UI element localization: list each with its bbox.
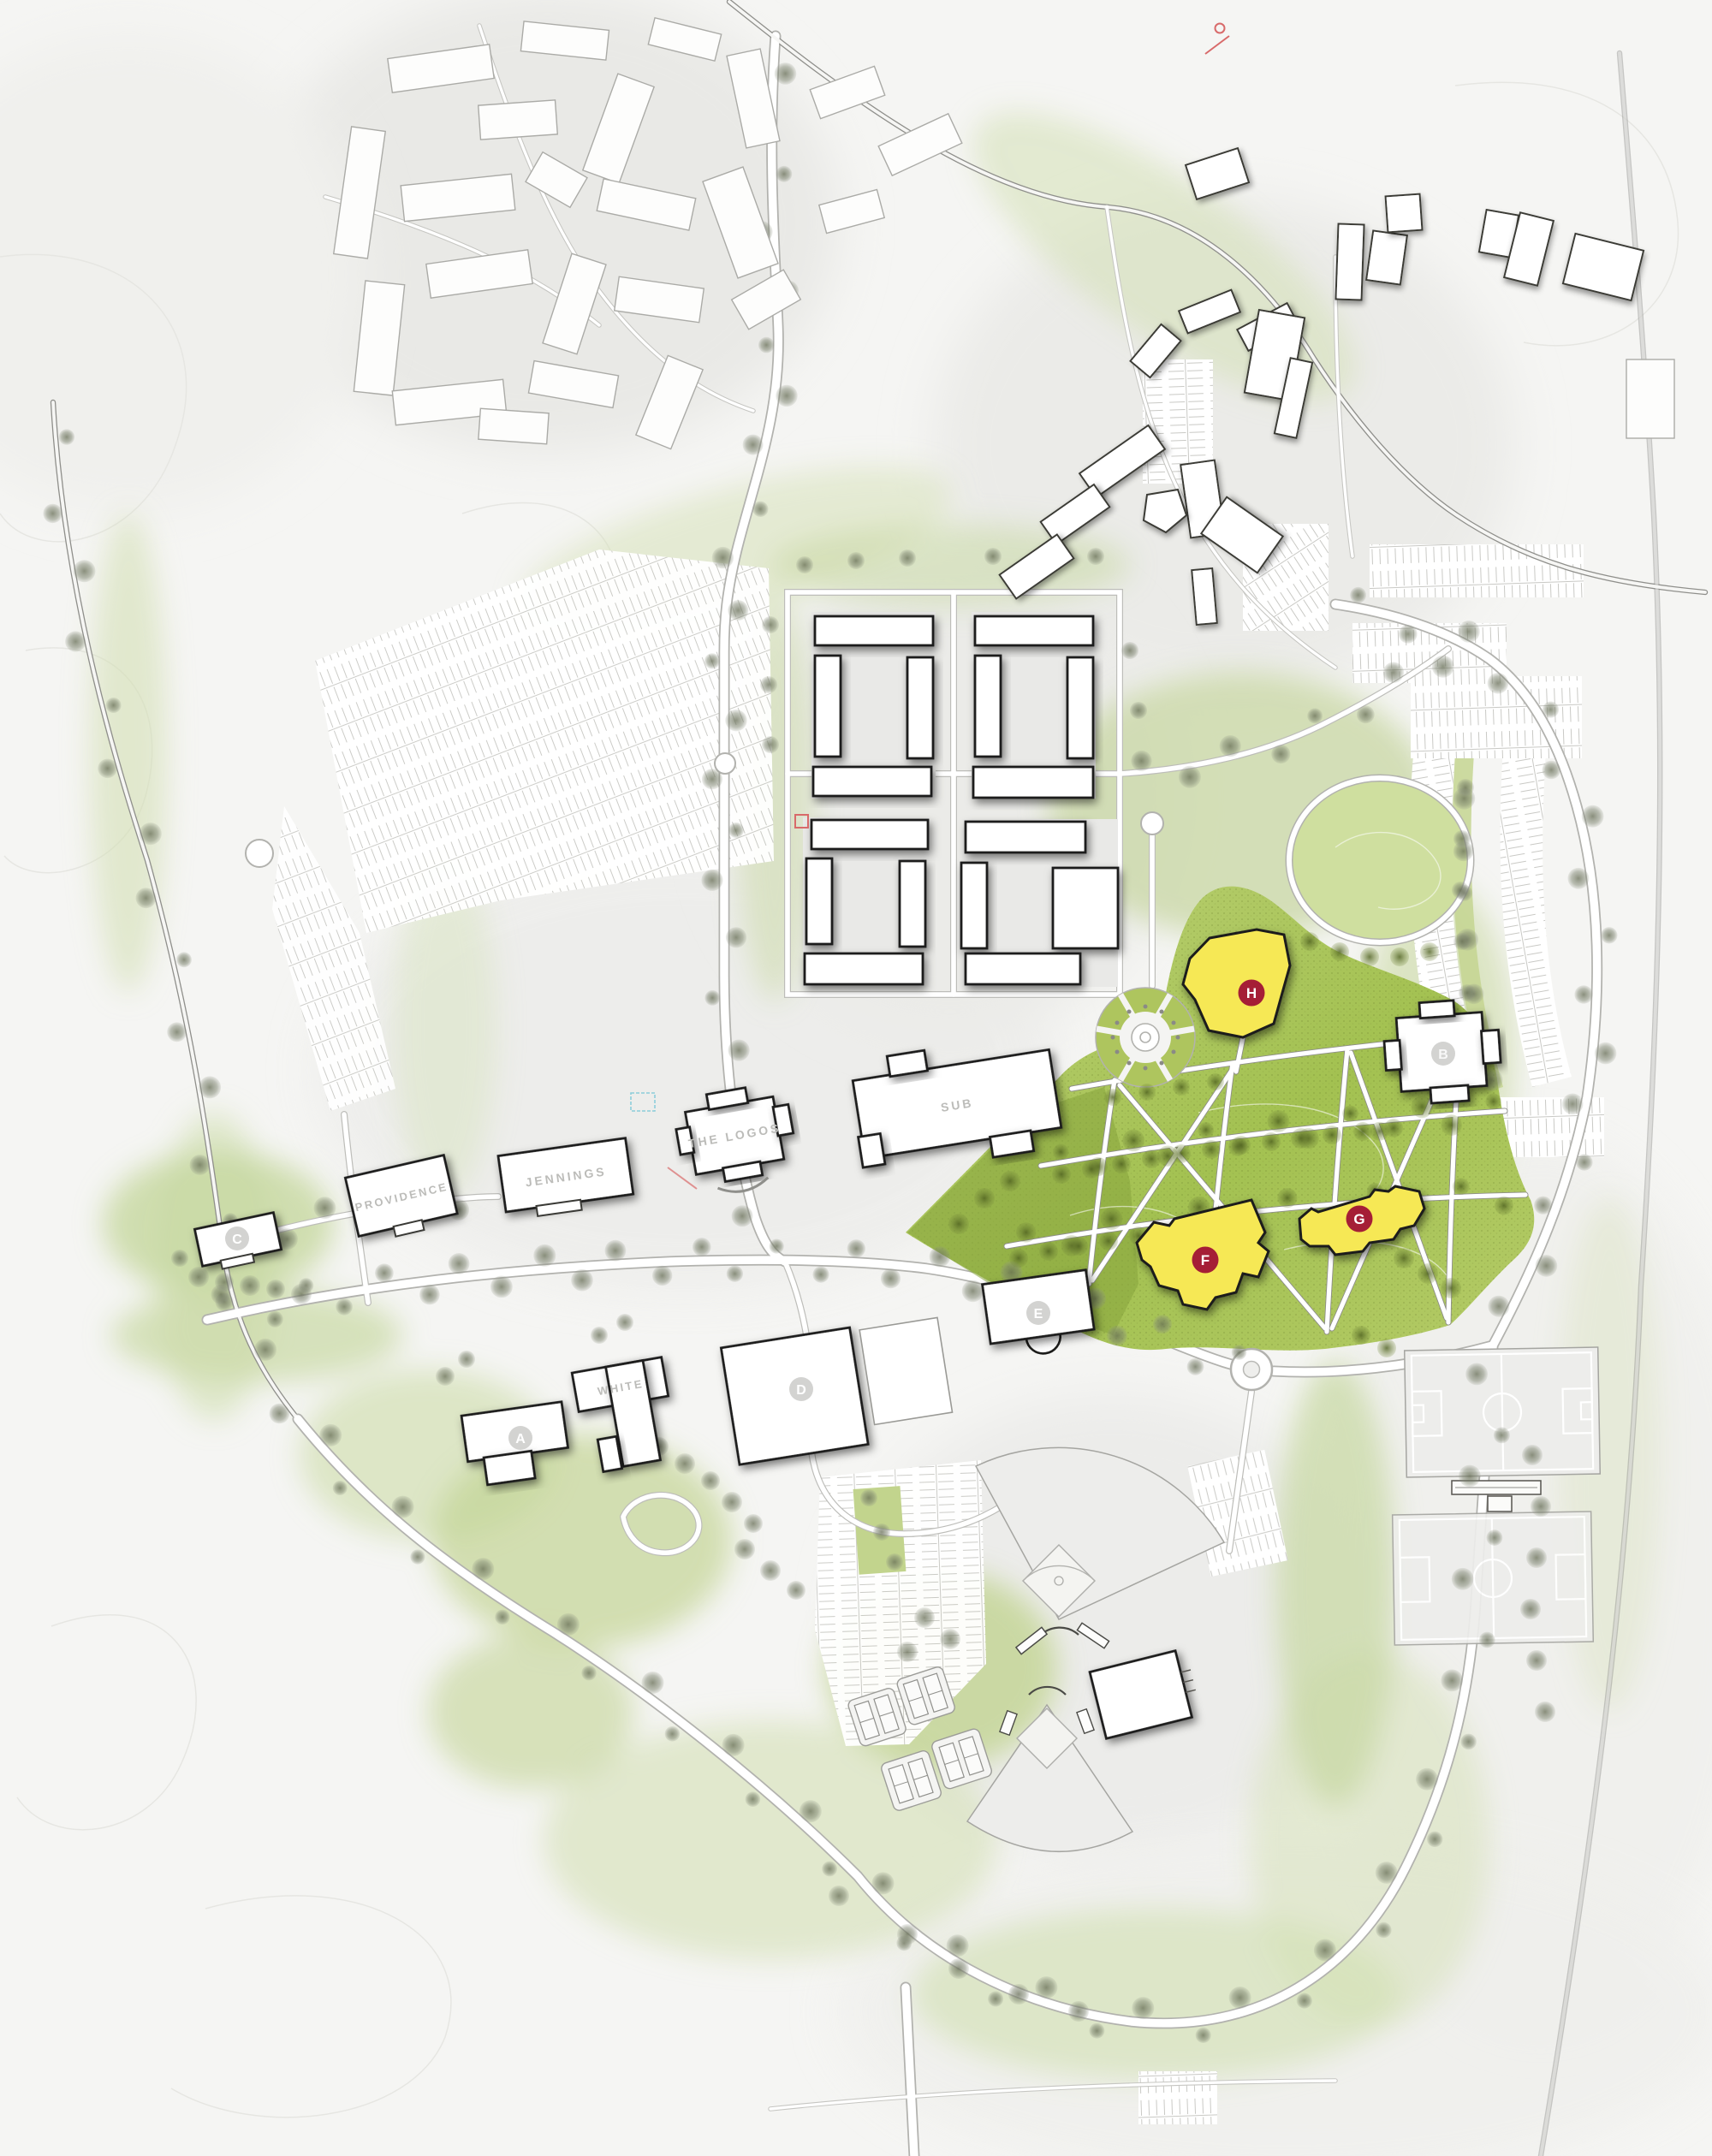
tree-icon	[1543, 702, 1559, 718]
tree-icon	[190, 1155, 211, 1175]
tree-icon	[758, 337, 775, 353]
tree-icon	[762, 616, 779, 633]
tree-icon	[1416, 1768, 1438, 1791]
tree-icon	[1441, 1670, 1463, 1692]
tree-icon	[1441, 1278, 1461, 1298]
tree-icon	[1394, 1248, 1414, 1268]
building-d-annex	[859, 1317, 952, 1424]
tree-icon	[1121, 642, 1138, 659]
tree-icon	[136, 888, 157, 908]
tree-icon	[1574, 985, 1592, 1003]
tree-icon	[702, 769, 722, 789]
tree-icon	[1039, 1242, 1058, 1261]
tree-icon	[1534, 1197, 1552, 1215]
tree-icon	[675, 1453, 695, 1474]
tree-icon	[1488, 1296, 1509, 1317]
roundabout-west	[246, 840, 273, 867]
tree-icon	[1432, 656, 1454, 678]
tree-icon	[1582, 805, 1604, 828]
tree-icon	[1314, 1939, 1336, 1962]
tree-icon	[746, 1791, 761, 1807]
tree-icon	[1376, 1862, 1398, 1884]
svg-text:C: C	[232, 1232, 242, 1247]
tree-icon	[188, 1267, 209, 1287]
tree-icon	[829, 1886, 849, 1906]
svg-text:E: E	[1034, 1307, 1043, 1322]
tree-icon	[701, 1471, 720, 1490]
tree-icon	[1568, 868, 1590, 889]
tree-icon	[1202, 1140, 1221, 1159]
tree-icon	[59, 429, 74, 444]
tree-icon	[701, 870, 722, 891]
tree-icon	[948, 1958, 969, 1979]
tree-icon	[1232, 1345, 1247, 1360]
tree-icon	[1016, 1222, 1036, 1242]
tree-icon	[1353, 1122, 1372, 1141]
tree-icon	[800, 1800, 822, 1822]
tree-icon	[1595, 1042, 1617, 1065]
tree-icon	[591, 1327, 608, 1344]
tree-icon	[744, 1514, 763, 1533]
tree-icon	[270, 1404, 290, 1424]
tree-icon	[1112, 1155, 1131, 1173]
tree-icon	[254, 1339, 276, 1361]
tree-icon	[1360, 947, 1379, 966]
svg-text:B: B	[1438, 1048, 1448, 1062]
tree-icon	[734, 1539, 755, 1559]
tree-icon	[1543, 761, 1561, 780]
tree-icon	[940, 1629, 960, 1649]
tree-icon	[1352, 1326, 1370, 1345]
tree-icon	[725, 710, 746, 731]
tree-icon	[847, 1239, 865, 1257]
site-badge-f: F	[1192, 1247, 1219, 1274]
tree-icon	[1495, 1197, 1513, 1215]
tree-icon	[1173, 1078, 1190, 1096]
tree-icon	[333, 1481, 348, 1495]
tree-icon	[1008, 1984, 1029, 2005]
tree-icon	[872, 1872, 895, 1894]
tree-icon	[762, 736, 779, 753]
tree-icon	[1427, 1832, 1442, 1847]
tree-icon	[860, 1489, 877, 1506]
tree-icon	[1307, 709, 1323, 724]
tree-icon	[760, 676, 777, 693]
tree-icon	[336, 1298, 353, 1316]
tree-icon	[652, 1266, 672, 1286]
tree-icon	[1107, 1326, 1127, 1346]
tree-icon	[1531, 1496, 1551, 1517]
svg-text:A: A	[515, 1432, 526, 1446]
tree-icon	[1452, 882, 1469, 899]
tree-icon	[1277, 1188, 1297, 1208]
tree-icon	[319, 1424, 342, 1446]
tree-icon	[1198, 1122, 1215, 1138]
tree-icon	[533, 1244, 556, 1267]
tree-icon	[1576, 1154, 1593, 1171]
tree-icon	[1262, 1132, 1281, 1151]
tree-icon	[776, 166, 793, 182]
tree-icon	[140, 823, 162, 845]
site-marker-c: C	[225, 1226, 249, 1250]
tree-icon	[1069, 1237, 1088, 1256]
tree-icon	[1000, 1171, 1020, 1191]
tree-icon	[886, 1553, 903, 1571]
tree-icon	[557, 1613, 580, 1636]
tree-icon	[1452, 1568, 1474, 1590]
site-marker-e: E	[1026, 1301, 1050, 1325]
tree-icon	[728, 600, 748, 621]
parking-lot-ne-housing-1	[1370, 544, 1584, 597]
tree-icon	[1138, 1084, 1156, 1101]
tree-icon	[106, 698, 122, 713]
tree-icon	[1411, 1096, 1433, 1118]
tree-icon	[1399, 625, 1418, 644]
tree-icon	[1390, 947, 1409, 966]
tree-icon	[728, 1040, 750, 1061]
tree-icon	[1536, 1255, 1558, 1277]
tree-icon	[1009, 1249, 1028, 1268]
tree-icon	[1350, 587, 1366, 603]
tree-icon	[1465, 1363, 1488, 1386]
roundabout-plaza-north	[1141, 812, 1163, 834]
tree-icon	[1601, 927, 1617, 943]
tree-icon	[1291, 1128, 1311, 1149]
tree-icon	[1220, 735, 1241, 757]
tree-icon	[1453, 1178, 1470, 1195]
tree-icon	[1122, 1130, 1144, 1152]
tree-icon	[436, 1367, 455, 1386]
tree-icon	[1460, 1734, 1477, 1750]
circular-plaza	[1096, 988, 1195, 1087]
tree-icon	[743, 435, 764, 455]
tree-icon	[760, 1560, 781, 1581]
tree-icon	[458, 1351, 475, 1368]
tree-icon	[1418, 1263, 1438, 1284]
tree-icon	[1232, 1136, 1251, 1155]
tree-icon	[1376, 1922, 1391, 1938]
tree-icon	[728, 823, 744, 838]
tree-icon	[897, 1642, 918, 1662]
tree-icon	[267, 1311, 283, 1327]
tree-icon	[1323, 1126, 1341, 1144]
tree-icon	[1297, 1993, 1312, 2009]
tree-icon	[722, 1734, 745, 1756]
tree-icon	[490, 1276, 513, 1298]
tree-icon	[947, 1934, 969, 1957]
tree-icon	[1099, 1232, 1118, 1250]
tree-icon	[410, 1549, 425, 1564]
tree-icon	[167, 1022, 187, 1042]
tree-icon	[616, 1314, 633, 1331]
site-marker-d: D	[789, 1377, 813, 1401]
tree-icon	[449, 1253, 470, 1274]
tree-icon	[1453, 933, 1471, 950]
tree-icon	[847, 552, 865, 569]
site-marker-a: A	[508, 1426, 532, 1450]
tree-icon	[1420, 942, 1439, 961]
tree-icon	[881, 1268, 901, 1288]
tree-icon	[732, 1205, 753, 1226]
tree-icon	[1300, 932, 1319, 951]
tree-icon	[812, 1267, 829, 1283]
tree-icon	[1104, 1089, 1121, 1106]
tree-icon	[1187, 1358, 1204, 1375]
tree-icon	[722, 1492, 742, 1512]
tree-icon	[1131, 751, 1151, 771]
tree-icon	[1342, 1106, 1358, 1122]
svg-text:G: G	[1353, 1211, 1364, 1227]
tree-icon	[74, 560, 96, 582]
svg-text:D: D	[796, 1383, 806, 1398]
tree-icon	[1357, 705, 1375, 723]
tree-icon	[1459, 984, 1476, 1001]
tree-icon	[1179, 766, 1201, 788]
site-badge-g: G	[1346, 1206, 1373, 1232]
tree-icon	[199, 1076, 221, 1098]
tree-icon	[1268, 1110, 1290, 1132]
tree-icon	[1130, 702, 1147, 719]
tree-icon	[1089, 2023, 1104, 2039]
tree-icon	[176, 952, 192, 967]
tree-icon	[1457, 779, 1474, 796]
tree-icon	[1142, 1149, 1161, 1168]
campus-master-plan-map: SUB THE LOGOS JENNINGS PROVIDENCE	[0, 0, 1712, 2156]
tree-icon	[171, 1250, 188, 1267]
tree-icon	[1035, 1976, 1057, 1999]
tree-icon	[1522, 1445, 1543, 1465]
tree-icon	[962, 1280, 984, 1303]
tree-icon	[727, 1266, 743, 1282]
tree-icon	[215, 1273, 234, 1292]
tree-icon	[1172, 1144, 1191, 1163]
tree-icon	[1383, 662, 1404, 683]
tree-icon	[752, 502, 768, 517]
tree-icon	[1082, 1160, 1101, 1179]
tree-icon	[930, 1246, 951, 1268]
tree-icon	[726, 927, 746, 947]
tree-icon	[775, 62, 797, 85]
tree-icon	[873, 1523, 890, 1541]
tree-icon	[974, 1188, 995, 1209]
tree-icon	[1453, 830, 1471, 847]
tree-icon	[581, 1666, 596, 1680]
tree-icon	[988, 1992, 1003, 2007]
tree-icon	[796, 556, 813, 573]
tree-icon	[1441, 1114, 1462, 1136]
tree-icon	[770, 1239, 784, 1254]
tree-icon	[571, 1269, 593, 1292]
tree-icon	[1488, 673, 1509, 694]
tree-icon	[704, 653, 720, 668]
svg-text:F: F	[1201, 1252, 1210, 1268]
tree-icon	[1153, 1315, 1172, 1333]
tree-icon	[1487, 1529, 1503, 1546]
tree-icon	[419, 1285, 440, 1305]
tree-icon	[472, 1558, 494, 1580]
tree-icon	[1052, 1165, 1071, 1184]
tree-icon	[787, 1581, 805, 1600]
tree-icon	[984, 548, 1002, 565]
tree-icon	[43, 504, 62, 523]
tree-icon	[899, 549, 916, 567]
tree-icon	[1207, 1073, 1224, 1090]
tree-icon	[1526, 1547, 1547, 1568]
tree-icon	[642, 1672, 664, 1694]
tree-icon	[314, 1197, 336, 1219]
tree-icon	[98, 759, 117, 779]
tree-icon	[1526, 1650, 1547, 1671]
soccer-field-north	[1405, 1347, 1601, 1477]
tree-icon	[914, 1607, 935, 1628]
tree-icon	[776, 385, 797, 407]
tree-icon	[392, 1496, 414, 1518]
tree-icon	[1053, 1144, 1068, 1160]
tree-icon	[1087, 548, 1104, 565]
tree-icon	[1271, 745, 1290, 763]
tree-icon	[1562, 1094, 1584, 1115]
tree-icon	[65, 631, 86, 651]
tree-icon	[1494, 1427, 1510, 1443]
tree-icon	[291, 1284, 312, 1304]
tree-icon	[1377, 1339, 1396, 1357]
tree-icon	[665, 1726, 681, 1742]
tree-icon	[948, 1214, 969, 1234]
tree-icon	[704, 990, 720, 1006]
tree-icon	[693, 1238, 711, 1256]
tree-icon	[1485, 1094, 1501, 1110]
parking-lot-bottom	[1138, 2071, 1217, 2124]
tree-icon	[375, 1263, 394, 1282]
tree-icon	[1068, 2001, 1089, 2022]
tree-icon	[1384, 1119, 1403, 1137]
tree-icon	[1101, 1208, 1123, 1230]
tree-icon	[897, 1924, 918, 1945]
tree-icon	[1330, 942, 1349, 961]
tree-icon	[266, 1280, 285, 1298]
svg-text:H: H	[1246, 985, 1257, 1001]
tree-icon	[1229, 1987, 1251, 2009]
tree-icon	[1479, 1632, 1495, 1648]
tree-icon	[1520, 1599, 1541, 1619]
oval-green	[1289, 778, 1471, 942]
tree-icon	[495, 1610, 509, 1624]
site-badge-h: H	[1239, 980, 1265, 1007]
tree-icon	[1132, 1997, 1154, 2019]
tree-icon	[1196, 2028, 1211, 2043]
site-marker-b: B	[1431, 1042, 1455, 1066]
tree-icon	[1535, 1702, 1555, 1722]
tree-icon	[1458, 621, 1480, 643]
tree-icon	[822, 1862, 837, 1877]
tree-icon	[240, 1275, 260, 1296]
tree-icon	[1459, 1465, 1481, 1488]
tree-icon	[712, 547, 734, 568]
tree-icon	[605, 1240, 627, 1262]
